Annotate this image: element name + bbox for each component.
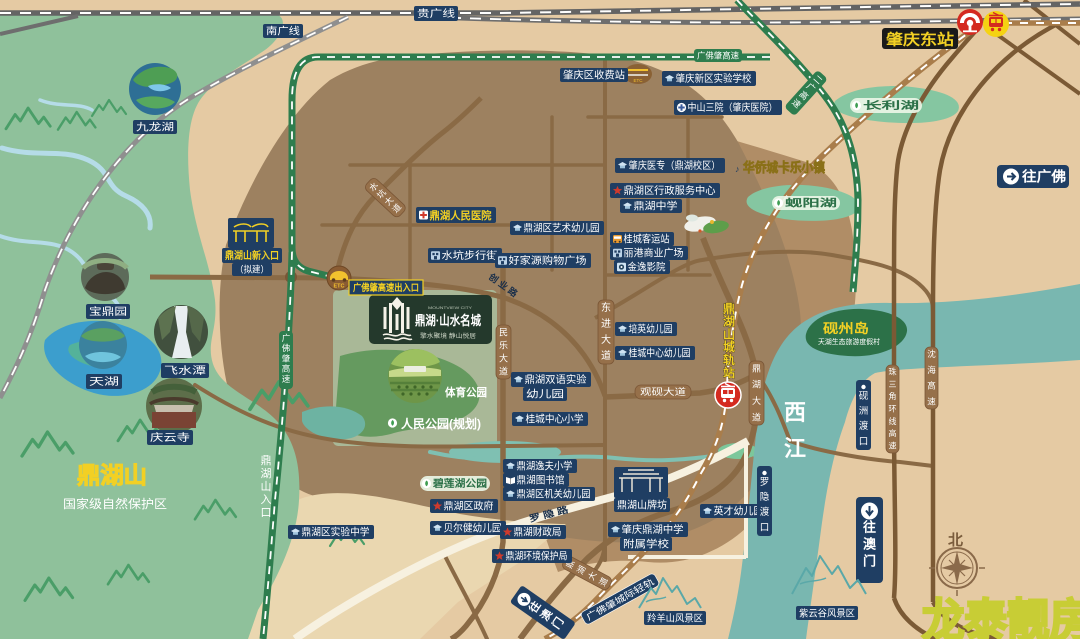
svg-text:鼎湖山城轨站: 鼎湖山城轨站 — [723, 302, 735, 380]
svg-text:丽港商业广场: 丽港商业广场 — [624, 247, 684, 260]
svg-text:♪: ♪ — [735, 164, 740, 174]
svg-text:幼儿园: 幼儿园 — [526, 388, 564, 401]
svg-text:北: 北 — [948, 532, 963, 549]
svg-text:华侨城卡乐小镇: 华侨城卡乐小镇 — [743, 160, 825, 175]
svg-text:鼎湖山入口: 鼎湖山入口 — [261, 454, 272, 519]
svg-text:珠三角环线高速: 珠三角环线高速 — [889, 367, 897, 451]
svg-text:宝鼎园: 宝鼎园 — [89, 305, 127, 318]
svg-text:鼎湖山新入口: 鼎湖山新入口 — [225, 249, 279, 262]
svg-text:桂城客运站: 桂城客运站 — [624, 233, 670, 246]
svg-text:好家源购物广场: 好家源购物广场 — [509, 254, 587, 267]
svg-text:庆云寺: 庆云寺 — [150, 431, 190, 444]
svg-text:肇庆医专（鼎湖校区）: 肇庆医专（鼎湖校区） — [629, 159, 721, 172]
svg-text:贝尔健幼儿园: 贝尔健幼儿园 — [444, 522, 502, 535]
svg-text:鼎湖区政府: 鼎湖区政府 — [444, 500, 494, 513]
svg-text:羚羊山风景区: 羚羊山风景区 — [647, 612, 703, 624]
svg-text:桂城中心幼儿园: 桂城中心幼儿园 — [629, 347, 691, 360]
svg-text:鼎湖环境保护局: 鼎湖环境保护局 — [506, 550, 568, 563]
svg-text:鼎湖·山水名城: 鼎湖·山水名城 — [415, 313, 481, 328]
svg-text:鼎湖图书馆: 鼎湖图书馆 — [517, 474, 565, 487]
svg-text:飞水潭: 飞水潭 — [164, 365, 206, 377]
svg-text:观砚大道: 观砚大道 — [640, 386, 686, 397]
svg-text:ETC: ETC — [634, 78, 644, 83]
svg-text:龙泰靓房: 龙泰靓房 — [922, 595, 1080, 639]
svg-text:附属学校: 附属学校 — [623, 538, 669, 551]
svg-text:擎水聚境 静山悦居: 擎水聚境 静山悦居 — [420, 332, 476, 340]
svg-text:MOUNTVIEW CITY: MOUNTVIEW CITY — [428, 305, 472, 310]
svg-text:（拟建）: （拟建） — [235, 264, 269, 275]
svg-text:长利湖: 长利湖 — [863, 99, 919, 112]
svg-text:中山三院（肇庆医院）: 中山三院（肇庆医院） — [688, 101, 778, 114]
svg-text:鼎湖人民医院: 鼎湖人民医院 — [430, 209, 492, 222]
svg-text:鼎湖财政局: 鼎湖财政局 — [514, 526, 562, 539]
svg-text:体育公园: 体育公园 — [445, 385, 487, 399]
svg-text:广佛肇高速: 广佛肇高速 — [282, 333, 291, 384]
svg-text:鼎湖山: 鼎湖山 — [77, 462, 147, 488]
svg-text:金逸影院: 金逸影院 — [628, 261, 666, 274]
svg-text:肇庆新区实验学校: 肇庆新区实验学校 — [676, 72, 752, 85]
svg-text:广佛肇高速出入口: 广佛肇高速出入口 — [353, 282, 419, 294]
svg-text:国家级自然保护区: 国家级自然保护区 — [63, 496, 167, 511]
svg-text:桂城中心小学: 桂城中心小学 — [526, 413, 584, 426]
svg-text:广佛肇高速: 广佛肇高速 — [697, 51, 739, 61]
svg-text:往澳门: 往澳门 — [863, 520, 877, 569]
svg-text:鼎湖区实验中学: 鼎湖区实验中学 — [302, 526, 370, 539]
svg-text:南广线: 南广线 — [266, 25, 300, 38]
svg-text:人民公园(规划): 人民公园(规划) — [401, 416, 481, 431]
svg-text:鼎湖双语实验: 鼎湖双语实验 — [525, 373, 587, 386]
svg-text:九龙湖: 九龙湖 — [136, 121, 174, 134]
svg-text:贵广线: 贵广线 — [417, 7, 455, 20]
svg-text:英才幼儿园: 英才幼儿园 — [714, 505, 764, 518]
svg-text:鼎湖区机关幼儿园: 鼎湖区机关幼儿园 — [517, 488, 591, 501]
svg-text:碧莲湖公园: 碧莲湖公园 — [432, 477, 487, 490]
svg-text:肇庆区收费站: 肇庆区收费站 — [563, 69, 625, 82]
svg-text:肇庆东站: 肇庆东站 — [885, 31, 954, 49]
svg-text:肇庆鼎湖中学: 肇庆鼎湖中学 — [622, 523, 684, 536]
svg-text:水坑步行街: 水坑步行街 — [442, 249, 498, 262]
svg-text:天湖: 天湖 — [89, 376, 119, 388]
svg-text:砚州岛: 砚州岛 — [823, 321, 869, 336]
svg-text:鼎湖山牌坊: 鼎湖山牌坊 — [617, 499, 667, 512]
svg-text:鼎湖区艺术幼儿园: 鼎湖区艺术幼儿园 — [524, 222, 600, 235]
svg-text:天湖生态旅游度假村: 天湖生态旅游度假村 — [818, 337, 880, 346]
svg-text:紫云谷风景区: 紫云谷风景区 — [799, 608, 855, 619]
svg-text:往广佛: 往广佛 — [1022, 169, 1066, 185]
svg-text:鼎湖逸夫小学: 鼎湖逸夫小学 — [517, 460, 573, 473]
svg-text:蚬阳湖: 蚬阳湖 — [785, 197, 837, 210]
svg-text:ETC: ETC — [334, 284, 345, 290]
svg-text:培英幼儿园: 培英幼儿园 — [629, 323, 673, 336]
svg-text:鼎湖区行政服务中心: 鼎湖区行政服务中心 — [624, 184, 716, 197]
svg-text:鼎湖中学: 鼎湖中学 — [634, 200, 678, 213]
